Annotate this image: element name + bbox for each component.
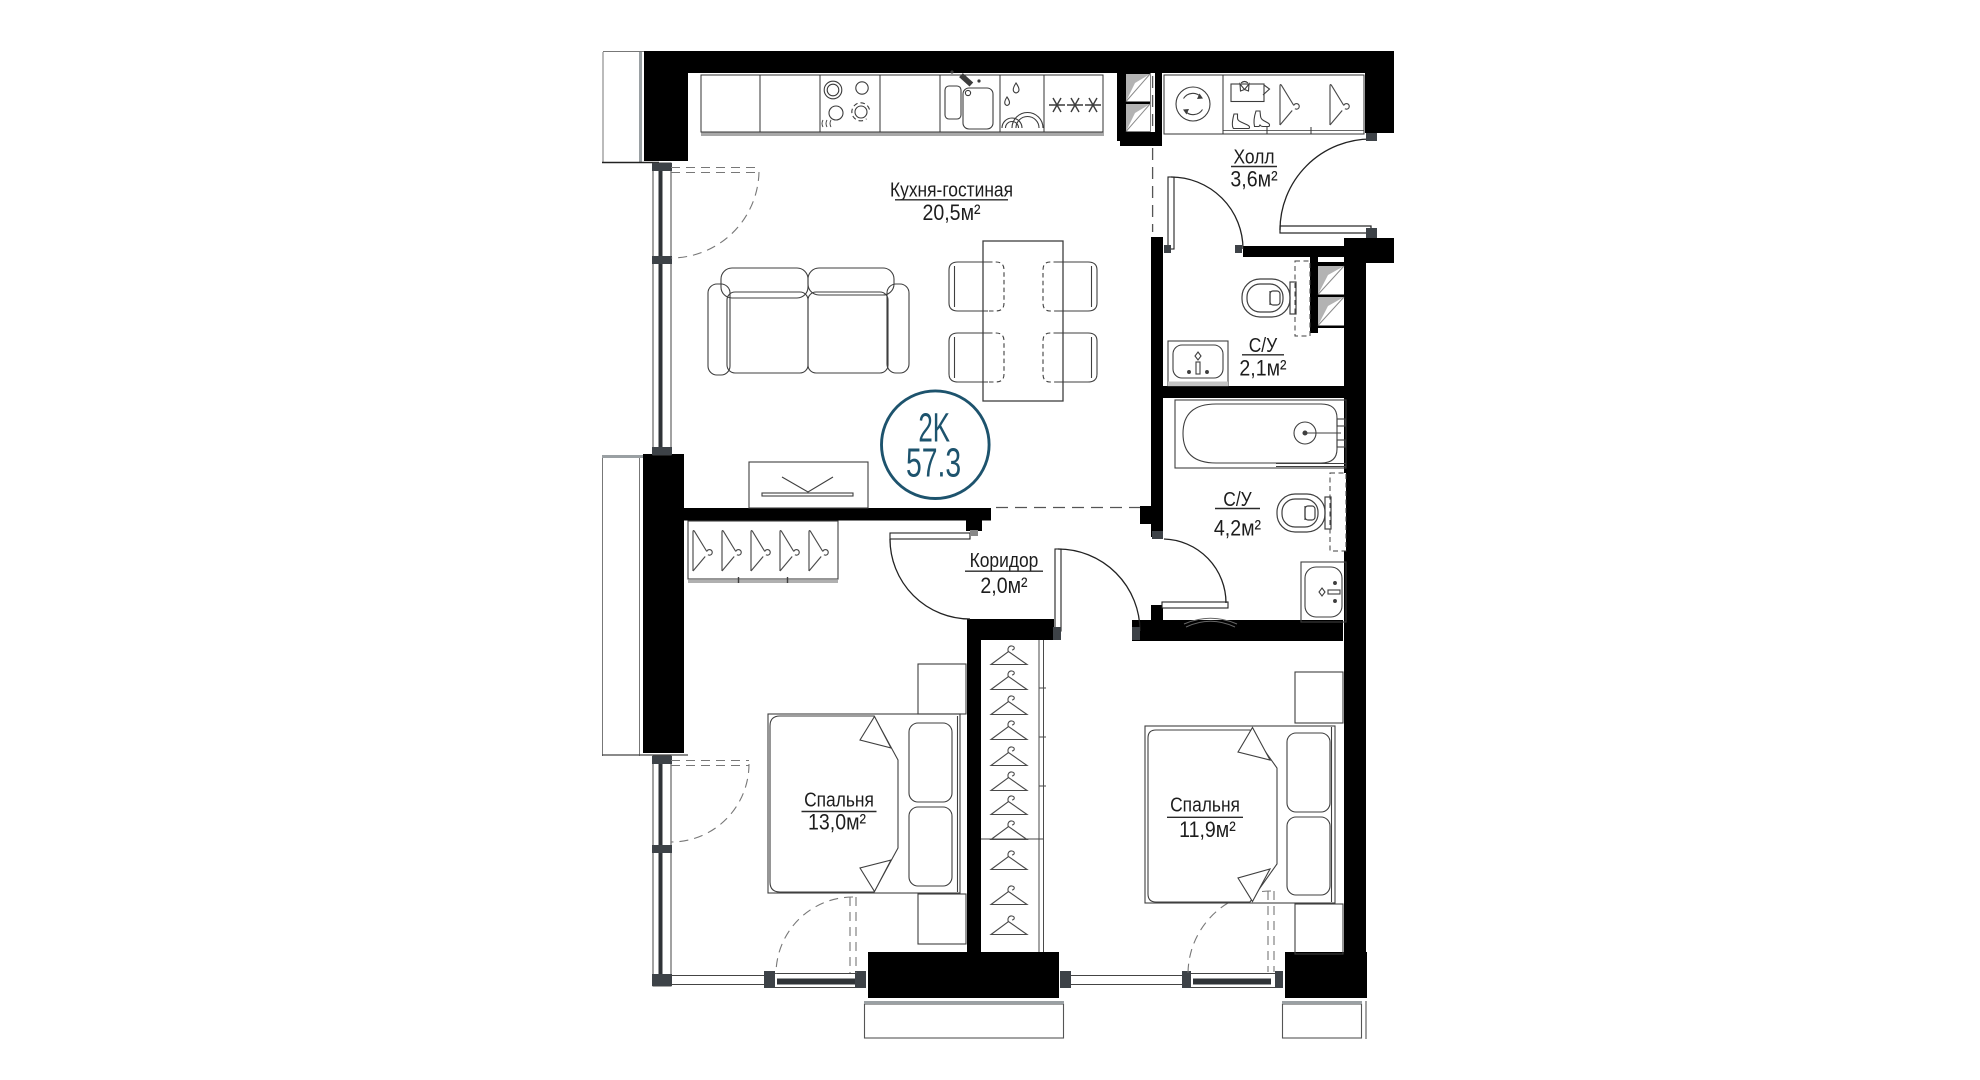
svg-text:11,9м²: 11,9м²: [1179, 818, 1236, 843]
svg-text:2,0м²: 2,0м²: [980, 574, 1027, 599]
svg-text:4,2м²: 4,2м²: [1214, 516, 1261, 541]
svg-text:Холл: Холл: [1234, 145, 1275, 167]
svg-text:Кухня-гостиная: Кухня-гостиная: [890, 178, 1013, 200]
svg-text:57.3: 57.3: [906, 440, 961, 485]
svg-text:Коридор: Коридор: [970, 549, 1039, 571]
svg-text:2,1м²: 2,1м²: [1239, 356, 1286, 381]
svg-text:20,5м²: 20,5м²: [922, 201, 980, 226]
svg-text:13,0м²: 13,0м²: [808, 810, 866, 835]
svg-text:Спальня: Спальня: [1170, 793, 1240, 815]
svg-text:Спальня: Спальня: [804, 788, 874, 810]
svg-text:С/У: С/У: [1223, 488, 1252, 510]
svg-text:С/У: С/У: [1249, 334, 1278, 356]
svg-text:3,6м²: 3,6м²: [1230, 167, 1277, 192]
